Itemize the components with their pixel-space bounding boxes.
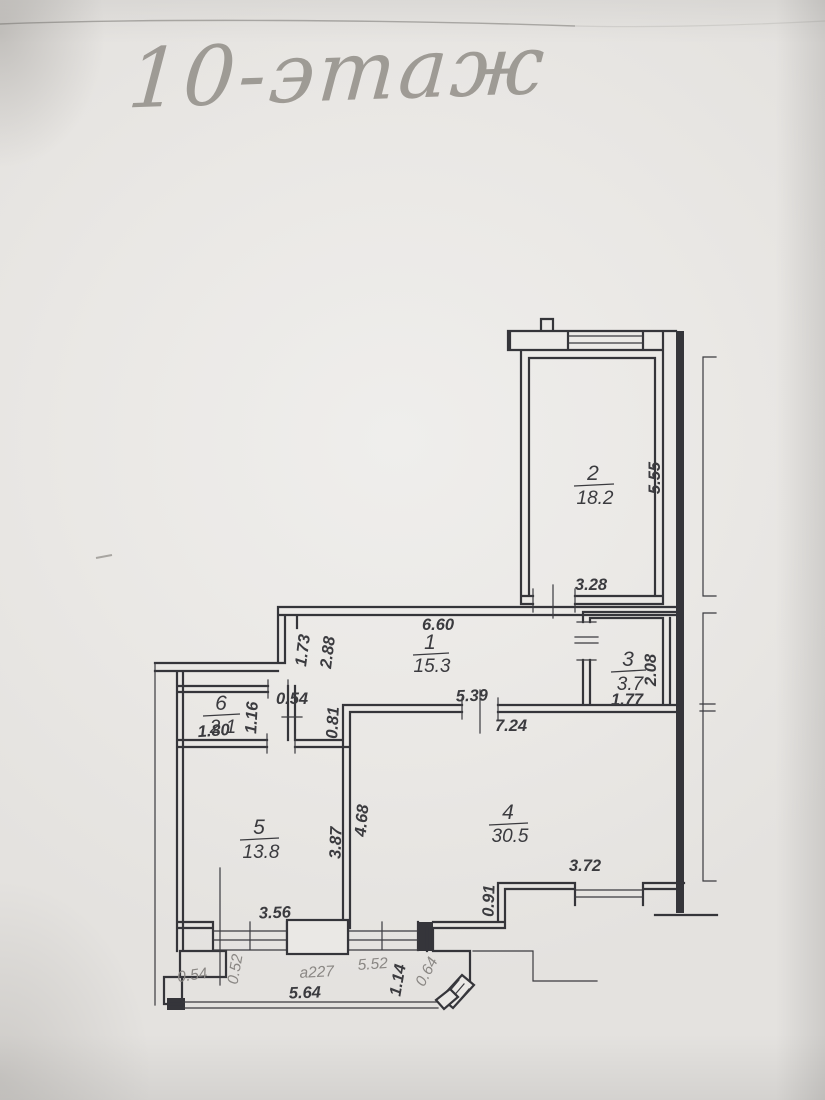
dimension-label: 5.55: [646, 461, 664, 494]
dimension-label: 5.52: [357, 955, 389, 974]
dimension-label: 0.54: [276, 690, 308, 708]
dimension-label: 0.91: [479, 884, 498, 917]
floor-plan-drawing: 115.3218.233.7430.5513.862.1 6.603.285.5…: [0, 0, 825, 1100]
dimension-label: 2.08: [642, 653, 660, 687]
room-number-label: 4: [502, 801, 514, 824]
dimension-label: 3.28: [575, 576, 608, 594]
room-area-label: 13.8: [243, 842, 280, 863]
dimension-label: 0.54: [176, 965, 209, 986]
dimension-label: 3.72: [569, 857, 601, 875]
dimension-label: a227: [299, 963, 336, 982]
paper-crease-lines: [0, 20, 825, 558]
dimension-label: 4.68: [352, 803, 373, 838]
corridor-thick-wall: [676, 331, 684, 913]
room-area-label: 30.5: [492, 826, 529, 847]
room-area-label: 18.2: [577, 488, 614, 509]
balcony-wall-block: [418, 922, 433, 951]
dimension-label: 6.60: [422, 616, 455, 634]
room-number-label: 3: [622, 648, 634, 671]
dimension-label: 3.56: [258, 903, 292, 922]
balcony-door-block: [287, 920, 348, 954]
dimension-label: 1.77: [611, 691, 644, 709]
dimension-label: 5.64: [288, 983, 321, 1002]
dimension-label: 7.24: [495, 717, 527, 735]
pencil-stray-mark: [96, 555, 112, 558]
dimension-label: 1.73: [292, 633, 314, 667]
dimension-label: 0.81: [323, 706, 343, 739]
dimension-label: 1.80: [197, 721, 231, 741]
dimension-label: 2.88: [317, 635, 339, 671]
room-number-label: 1: [424, 631, 436, 654]
room-area-label: 15.3: [414, 656, 451, 677]
paper-edge-crease: [0, 20, 575, 26]
photographed-floor-plan-page: 10-этаж 115.3218.233.7430.5513.862.1: [0, 0, 825, 1100]
room-number-label: 2: [586, 462, 599, 485]
dimension-label: 5.39: [455, 686, 489, 705]
dimension-label: 0.52: [225, 953, 247, 986]
dimension-labels: 6.603.285.551.732.880.541.161.800.815.39…: [176, 461, 664, 1002]
dimension-label: 1.14: [386, 963, 409, 998]
dimension-label: 3.87: [326, 826, 345, 860]
dimension-label: 0.64: [412, 954, 441, 989]
room-number-label: 6: [215, 692, 227, 715]
room-number-label: 5: [253, 816, 265, 839]
paper-edge-crease-faint: [575, 21, 825, 27]
dimension-label: 1.16: [242, 700, 262, 734]
